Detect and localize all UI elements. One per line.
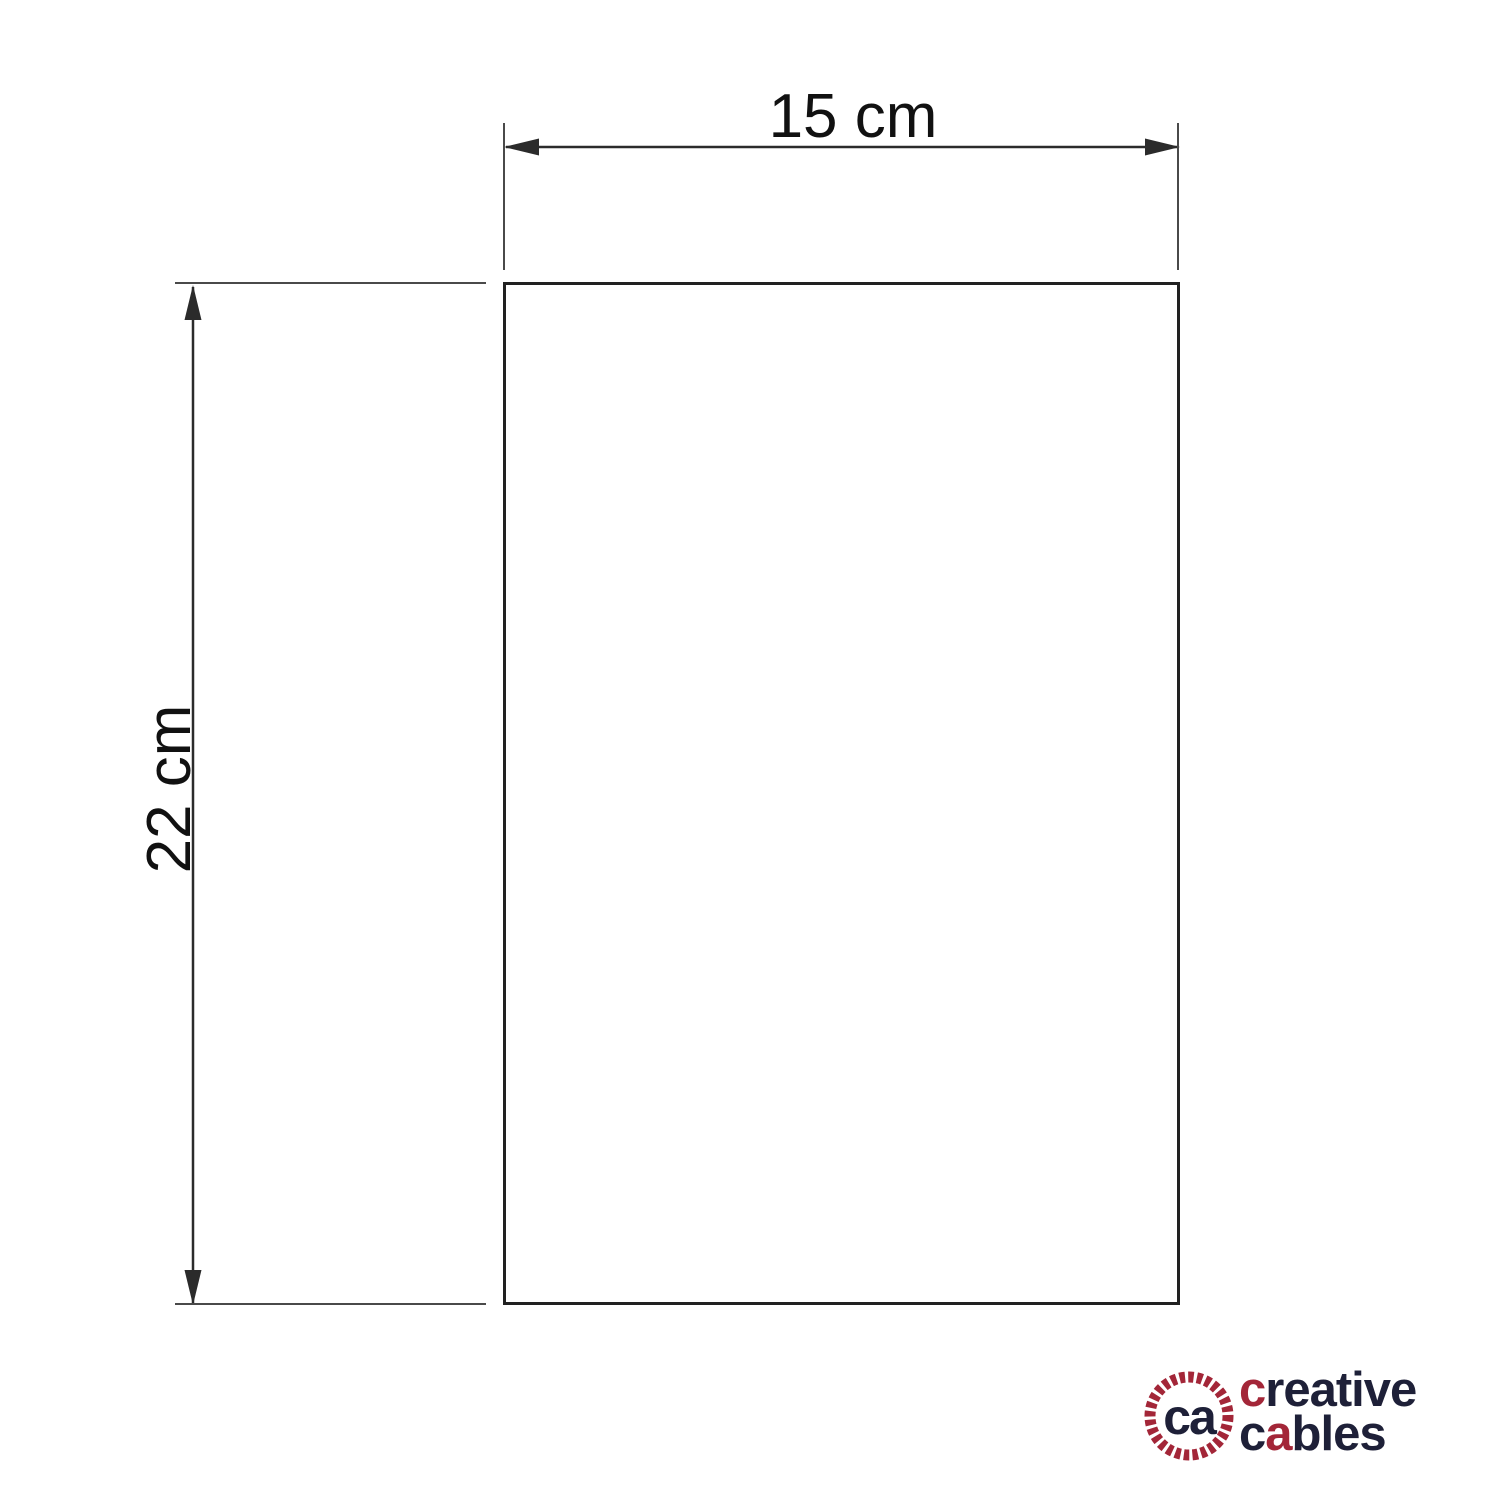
logo-line-creative: creative — [1239, 1368, 1416, 1412]
arrowhead-down-icon — [185, 1270, 202, 1305]
height-extension-line-bottom — [175, 1303, 486, 1305]
brand-logo: ca creative cables — [1142, 1364, 1492, 1464]
logo-wordmark: creative cables — [1239, 1368, 1416, 1456]
logo-line-cables: cables — [1239, 1412, 1416, 1456]
width-extension-line-left — [503, 123, 505, 270]
product-outline-rectangle — [503, 282, 1180, 1305]
dimension-diagram: 15 cm 22 cm ca creative cables — [0, 0, 1499, 1500]
height-dimension-line — [176, 277, 210, 1313]
width-dimension-line — [496, 130, 1188, 164]
logo-cables-a: a — [1265, 1407, 1291, 1461]
logo-cables-c: c — [1239, 1407, 1265, 1461]
logo-monogram: ca — [1142, 1369, 1236, 1463]
arrowhead-up-icon — [185, 285, 202, 320]
height-extension-line-top — [175, 282, 486, 284]
arrowhead-right-icon — [1145, 139, 1180, 156]
logo-cables-rest: bles — [1292, 1407, 1386, 1461]
arrowhead-left-icon — [504, 139, 539, 156]
width-extension-line-right — [1177, 123, 1179, 270]
